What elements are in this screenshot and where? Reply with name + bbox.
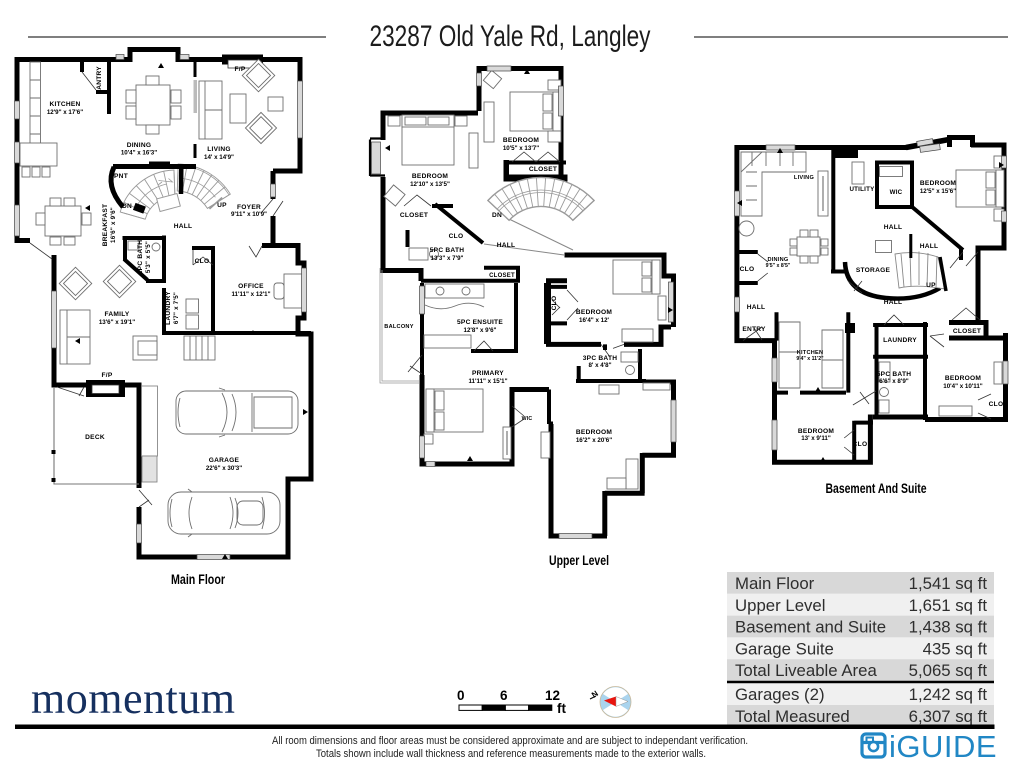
svg-text:6'6" x 8'9": 6'6" x 8'9" xyxy=(879,378,909,385)
svg-text:HALL: HALL xyxy=(747,304,766,311)
svg-text:Total Measured: Total Measured xyxy=(735,707,850,726)
svg-text:5'3" x 5'5": 5'3" x 5'5" xyxy=(145,241,152,273)
svg-text:momentum: momentum xyxy=(31,674,235,723)
svg-text:11'11" x 15'1": 11'11" x 15'1" xyxy=(468,378,507,385)
svg-text:BEDROOM: BEDROOM xyxy=(920,180,956,187)
svg-text:OFFICE: OFFICE xyxy=(238,283,264,290)
svg-text:CLO: CLO xyxy=(449,233,464,240)
svg-text:10'4" x 16'3": 10'4" x 16'3" xyxy=(121,150,157,157)
svg-text:0: 0 xyxy=(457,688,465,703)
svg-text:Main Floor: Main Floor xyxy=(171,572,226,587)
svg-text:12'5" x 15'6": 12'5" x 15'6" xyxy=(920,188,956,195)
svg-text:KITCHEN: KITCHEN xyxy=(49,101,80,108)
svg-text:FOYER: FOYER xyxy=(237,204,261,211)
svg-text:Upper Level: Upper Level xyxy=(549,553,609,568)
svg-text:BEDROOM: BEDROOM xyxy=(576,309,612,316)
svg-text:10'4" x 10'11": 10'4" x 10'11" xyxy=(943,383,983,390)
svg-text:Basement and Suite: Basement and Suite xyxy=(735,618,886,637)
svg-text:16'6" x 9'6": 16'6" x 9'6" xyxy=(110,207,117,243)
svg-text:6,307 sq ft: 6,307 sq ft xyxy=(909,707,988,726)
svg-text:PNT: PNT xyxy=(114,173,128,180)
svg-text:ft: ft xyxy=(557,701,566,716)
svg-text:CLO: CLO xyxy=(989,401,1004,408)
svg-text:CLO: CLO xyxy=(740,266,755,273)
svg-text:Basement And Suite: Basement And Suite xyxy=(826,481,927,496)
svg-text:CLO: CLO xyxy=(551,296,558,311)
svg-text:Garages (2): Garages (2) xyxy=(735,685,825,704)
svg-text:BALCONY: BALCONY xyxy=(384,324,413,330)
svg-text:BEDROOM: BEDROOM xyxy=(412,173,448,180)
svg-text:DINING: DINING xyxy=(127,142,152,149)
svg-text:DECK: DECK xyxy=(85,434,105,441)
svg-text:6: 6 xyxy=(500,688,508,703)
svg-text:F/P: F/P xyxy=(101,372,112,379)
svg-text:CLO: CLO xyxy=(853,441,868,448)
svg-text:6'7" x 7'5": 6'7" x 7'5" xyxy=(173,292,180,324)
svg-text:BEDROOM: BEDROOM xyxy=(503,137,539,144)
svg-text:1,242 sq ft: 1,242 sq ft xyxy=(909,685,988,704)
svg-text:9'5" x 8'5": 9'5" x 8'5" xyxy=(766,263,791,269)
svg-text:PRIMARY: PRIMARY xyxy=(472,370,504,377)
svg-text:HALL: HALL xyxy=(174,223,193,230)
svg-text:All room dimensions and floor: All room dimensions and floor areas must… xyxy=(272,735,748,747)
svg-text:11'11" x 12'1": 11'11" x 12'1" xyxy=(231,291,270,298)
svg-text:5,065 sq ft: 5,065 sq ft xyxy=(909,661,988,680)
svg-text:5PC BATH: 5PC BATH xyxy=(877,371,911,378)
svg-text:F/P: F/P xyxy=(234,66,245,73)
svg-text:CLOSET: CLOSET xyxy=(489,273,515,279)
svg-text:Upper Level: Upper Level xyxy=(735,596,826,615)
svg-text:1,541 sq ft: 1,541 sq ft xyxy=(909,574,988,593)
svg-text:LIVING: LIVING xyxy=(794,175,814,181)
svg-text:CLOSET: CLOSET xyxy=(400,212,428,219)
svg-text:DN: DN xyxy=(122,203,132,210)
svg-text:BEDROOM: BEDROOM xyxy=(576,429,612,436)
svg-text:2PC BATH: 2PC BATH xyxy=(137,240,144,274)
svg-text:LAUNDRY: LAUNDRY xyxy=(883,337,917,344)
svg-text:ENTRY: ENTRY xyxy=(742,326,766,333)
svg-text:16'2" x 20'6": 16'2" x 20'6" xyxy=(576,437,612,444)
svg-text:435 sq ft: 435 sq ft xyxy=(923,639,988,658)
svg-text:22'6" x 30'3": 22'6" x 30'3" xyxy=(206,465,242,472)
svg-text:10'5" x 13'7": 10'5" x 13'7" xyxy=(503,145,539,152)
svg-text:LAUNDRY: LAUNDRY xyxy=(165,291,172,325)
svg-text:WIC: WIC xyxy=(522,416,533,422)
svg-text:UP: UP xyxy=(926,282,936,289)
svg-text:CLOSET: CLOSET xyxy=(529,166,557,173)
svg-text:Main Floor: Main Floor xyxy=(735,574,815,593)
svg-text:13'3" x 7'9": 13'3" x 7'9" xyxy=(431,255,464,262)
svg-text:13'6" x 19'1": 13'6" x 19'1" xyxy=(99,319,135,326)
svg-text:23287 Old Yale Rd, Langley: 23287 Old Yale Rd, Langley xyxy=(370,20,651,53)
svg-text:FAMILY: FAMILY xyxy=(104,311,129,318)
svg-text:BEDROOM: BEDROOM xyxy=(945,375,981,382)
svg-text:PANTRY: PANTRY xyxy=(96,66,103,94)
svg-text:1,438 sq ft: 1,438 sq ft xyxy=(909,618,988,637)
svg-text:HALL: HALL xyxy=(497,242,516,249)
svg-text:HALL: HALL xyxy=(920,243,939,250)
svg-text:9'4" x 11'2": 9'4" x 11'2" xyxy=(796,356,824,362)
svg-text:Total Liveable Area: Total Liveable Area xyxy=(735,661,877,680)
svg-text:BREAKFAST: BREAKFAST xyxy=(102,204,109,247)
svg-text:Garage Suite: Garage Suite xyxy=(735,639,834,658)
svg-text:DN: DN xyxy=(492,212,502,219)
svg-text:8' x 4'8": 8' x 4'8" xyxy=(588,362,611,369)
svg-text:iGUIDE: iGUIDE xyxy=(889,729,997,764)
svg-text:HALL: HALL xyxy=(884,224,903,231)
svg-text:1,651 sq ft: 1,651 sq ft xyxy=(909,596,988,615)
svg-text:HALL: HALL xyxy=(884,299,903,306)
svg-text:16'4" x 12': 16'4" x 12' xyxy=(579,317,609,324)
svg-text:LIVING: LIVING xyxy=(207,146,230,153)
svg-text:GARAGE: GARAGE xyxy=(209,457,240,464)
svg-text:UTILITY: UTILITY xyxy=(849,186,875,193)
svg-text:STORAGE: STORAGE xyxy=(856,267,891,274)
svg-text:5PC ENSUITE: 5PC ENSUITE xyxy=(457,319,503,326)
svg-text:9'11" x 10'9": 9'11" x 10'9" xyxy=(231,211,267,218)
svg-text:12'10" x 13'5": 12'10" x 13'5" xyxy=(410,181,450,188)
svg-text:UP: UP xyxy=(217,202,227,209)
svg-text:CLO: CLO xyxy=(195,258,210,265)
svg-text:12'9" x 17'6": 12'9" x 17'6" xyxy=(47,109,83,116)
svg-text:WIC: WIC xyxy=(890,189,903,196)
svg-text:3PC BATH: 3PC BATH xyxy=(583,355,617,362)
svg-text:Totals shown include wall thic: Totals shown include wall thickness and … xyxy=(316,748,706,760)
svg-text:BEDROOM: BEDROOM xyxy=(798,428,834,435)
svg-text:5PC BATH: 5PC BATH xyxy=(430,247,464,254)
svg-text:14' x 14'9": 14' x 14'9" xyxy=(204,154,234,161)
svg-text:13' x 9'11": 13' x 9'11" xyxy=(801,435,831,442)
svg-text:CLOSET: CLOSET xyxy=(953,328,981,335)
svg-text:12'8" x 9'6": 12'8" x 9'6" xyxy=(464,327,497,334)
